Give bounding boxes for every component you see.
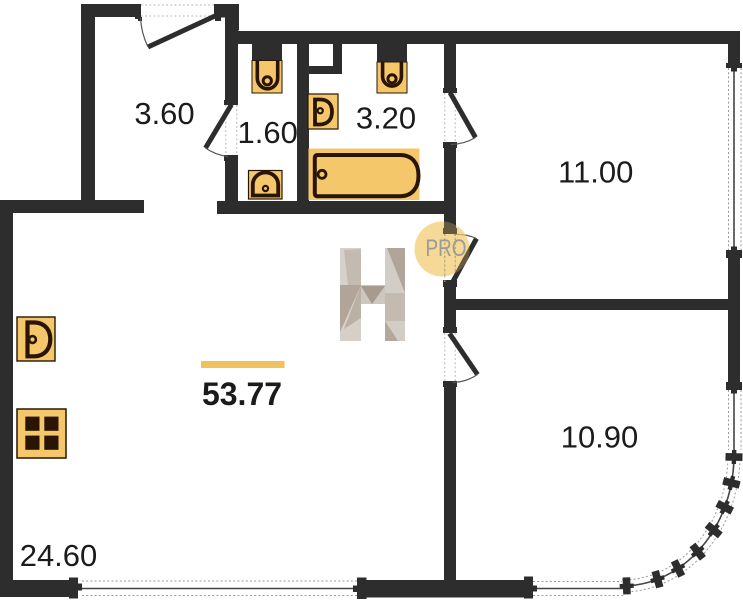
svg-text:10.90: 10.90: [561, 420, 639, 455]
svg-text:PRO: PRO: [426, 235, 467, 262]
svg-text:24.60: 24.60: [20, 538, 98, 573]
svg-text:11.00: 11.00: [558, 155, 633, 190]
svg-text:3.20: 3.20: [356, 101, 416, 136]
svg-text:1.60: 1.60: [238, 115, 298, 150]
svg-text:53.77: 53.77: [202, 376, 282, 412]
svg-text:3.60: 3.60: [134, 96, 194, 131]
